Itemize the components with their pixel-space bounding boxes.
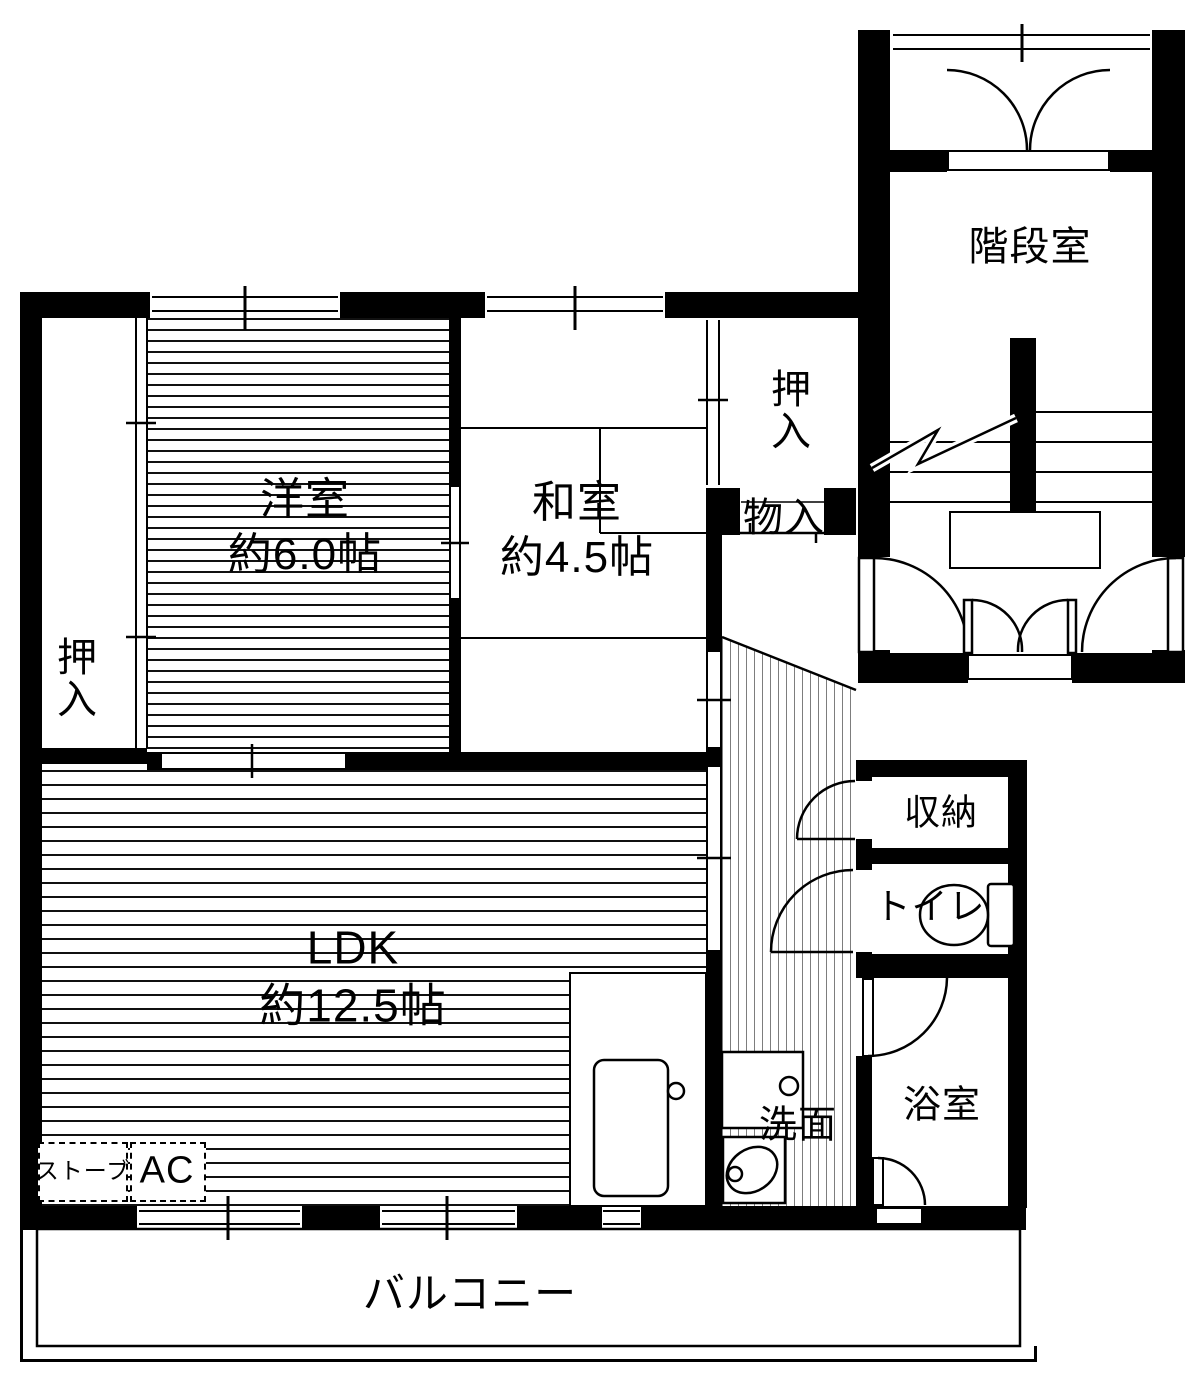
western-room-name: 洋室 (228, 472, 382, 527)
storage-door (797, 781, 855, 839)
stove-label: ストーブ (36, 1157, 131, 1186)
western-room-size: 約6.0帖 (228, 527, 382, 582)
stair-top-double-door (947, 70, 1110, 170)
stair-landing (950, 512, 1100, 568)
ldk-name: LDK (259, 920, 447, 978)
unit-entrance-door (859, 558, 968, 652)
bath-door (863, 978, 947, 1056)
western-room-label: 洋室 約6.0帖 (228, 472, 382, 582)
kitchen-counter (570, 973, 706, 1206)
closet-left-label: 押入 (44, 636, 102, 720)
kitchen-faucet (668, 1083, 684, 1099)
balcony-label: バルコニー (363, 1268, 577, 1321)
japanese-room-name: 和室 (500, 475, 654, 530)
toilet-label: トイレ (874, 884, 985, 929)
stairwell-label: 階段室 (969, 222, 1092, 272)
stairs (872, 338, 1152, 568)
washroom-label: 洗面 (759, 1102, 837, 1150)
sliding-ticks (126, 400, 731, 858)
storage-small-label: 物入 (743, 493, 825, 543)
landing-bottom-double-door (964, 600, 1076, 679)
japanese-room-label: 和室 約4.5帖 (500, 475, 654, 585)
japanese-room-size: 約4.5帖 (500, 530, 654, 585)
closet-mid-label: 押入 (758, 368, 816, 452)
stair-divider (1010, 338, 1036, 514)
kitchen-sink (594, 1060, 668, 1196)
floorplan: 洋室 約6.0帖 和室 約4.5帖 LDK 約12.5帖 押入 押入 物入 階段… (0, 0, 1200, 1385)
bath-label: 浴室 (903, 1082, 981, 1130)
ldk-size: 約12.5帖 (259, 977, 447, 1035)
genkan-step (722, 637, 856, 691)
ac-label: AC (140, 1147, 195, 1195)
toilet-door (771, 870, 853, 952)
bath-balcony-door (873, 1158, 925, 1224)
neighbor-entrance-door (1082, 558, 1183, 652)
ldk-label: LDK 約12.5帖 (259, 920, 447, 1035)
storage-label: 収納 (904, 790, 978, 835)
